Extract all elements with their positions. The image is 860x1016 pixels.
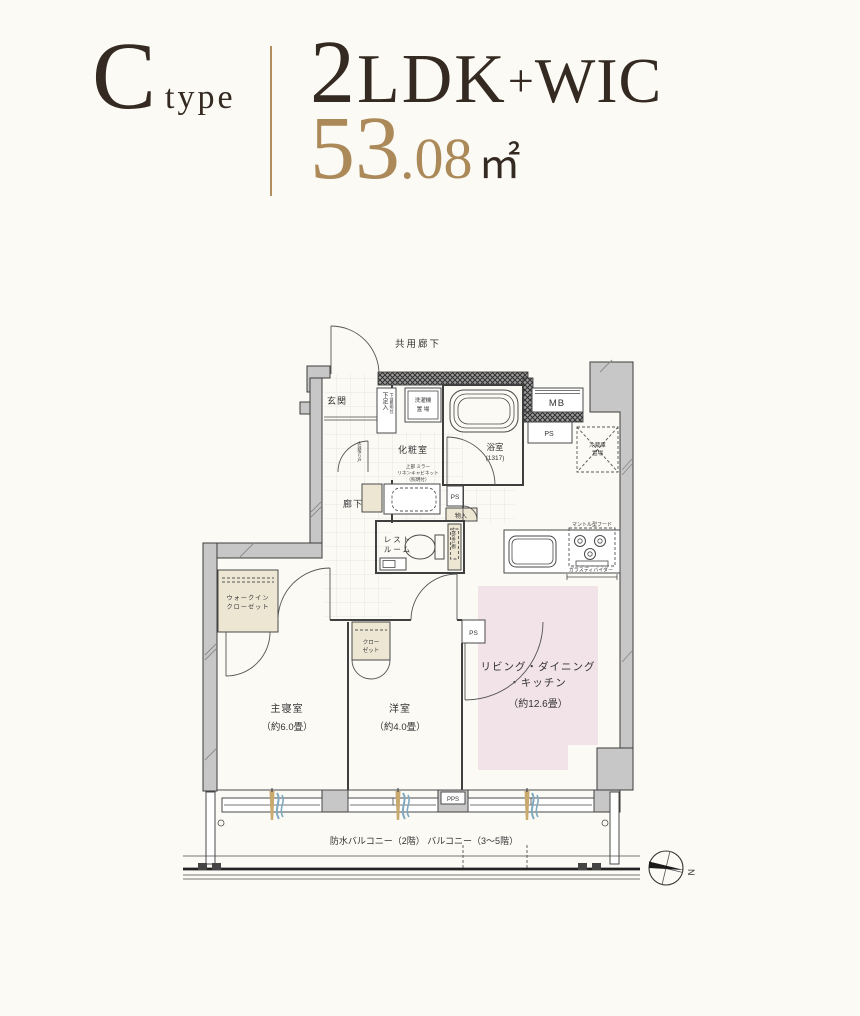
mb-label: MB [549, 398, 565, 409]
shoe-box-label: 下足入 [381, 392, 388, 410]
south-windows: PPS [222, 788, 594, 820]
corridor-label: 廊下 [343, 498, 363, 509]
hall-door-note: 太鼓張り戸 [357, 440, 363, 464]
floor-plan: 共用廊下 玄関 下足入 （下部照明付） 洗濯機 置 場 浴室 (1317) 化粧… [0, 0, 860, 1016]
compass: N [649, 851, 696, 885]
fridge-space: 冷蔵庫 置場 [577, 427, 618, 472]
mirror-note-2: リネンキャビネット [397, 470, 438, 477]
fridge-label-2: 置場 [592, 449, 604, 457]
upper-cabinet-label: 上部吊戸棚 [451, 526, 457, 550]
mirror-note-3: （照明付） [407, 476, 430, 483]
common-corridor-label: 共用廊下 [395, 338, 441, 350]
wic-label-1: ウォークイン [226, 594, 269, 602]
ps-label-mb: PS [544, 431, 554, 438]
hood-note: マントル型フード [572, 521, 612, 528]
powder-room-label: 化粧室 [398, 444, 428, 455]
ps-label-western: PS [469, 630, 478, 637]
western-size-label: （約4.0畳） [374, 721, 425, 733]
pps-label: PPS [447, 797, 459, 803]
washer-label-1: 洗濯機 [415, 396, 432, 404]
western-label: 洋室 [389, 702, 411, 715]
master-size-label: （約6.0畳） [261, 721, 312, 733]
fridge-label-1: 冷蔵庫 [589, 441, 606, 449]
bathtub [450, 390, 518, 432]
compass-north-label: N [686, 869, 696, 876]
entrance-label: 玄関 [327, 395, 347, 406]
bath-label: 浴室 [486, 442, 504, 452]
master-label: 主寝室 [271, 702, 304, 715]
closet-label-2: ゼット [363, 646, 380, 654]
balcony-label: 防水バルコニー（2階） バルコニー（3〜5階） [330, 835, 518, 846]
closet-label-1: クロー [363, 639, 380, 646]
toilet-tank [435, 535, 444, 559]
washer-label-2: 置 場 [417, 405, 430, 413]
storage-label: 物入 [455, 512, 467, 520]
restroom-label-2: ルーム [384, 545, 412, 554]
ldk-size-label: （約12.6畳） [508, 697, 567, 710]
mirror-note-1: 上部 ミラー [406, 463, 431, 470]
restroom-counter [380, 558, 406, 570]
ps-label-mid: PS [451, 494, 460, 501]
walk-in-closet: ウォークイン クローゼット [218, 570, 278, 676]
shoe-box-note: （下部照明付） [389, 390, 394, 417]
vanity-cabinet [362, 484, 382, 512]
wic-label-2: クローゼット [226, 603, 269, 611]
kitchen: マントル型フード ガラスディバイダー [504, 521, 620, 580]
divider-note: ガラスディバイダー [569, 567, 613, 574]
compass-needle [649, 862, 684, 871]
ldk-label-1: リビング・ダイニング [481, 660, 596, 673]
